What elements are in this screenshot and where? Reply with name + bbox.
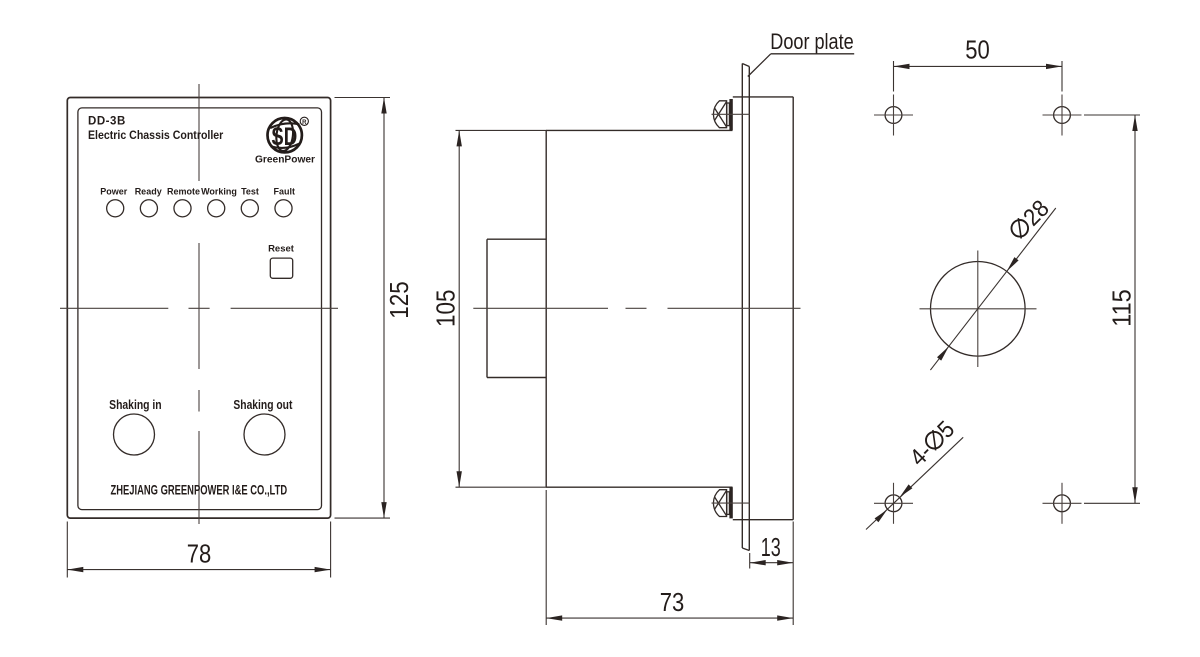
svg-text:DD-3B: DD-3B	[88, 115, 125, 127]
svg-text:125: 125	[384, 281, 414, 319]
svg-text:Reset: Reset	[268, 244, 295, 255]
svg-text:105: 105	[431, 290, 461, 328]
svg-text:R: R	[302, 120, 307, 126]
svg-text:Fault: Fault	[274, 187, 296, 197]
svg-text:Working: Working	[201, 187, 237, 197]
svg-text:13: 13	[761, 532, 781, 562]
svg-text:73: 73	[660, 587, 685, 617]
svg-text:Remote: Remote	[167, 187, 200, 197]
svg-text:Electric Chassis Controller: Electric Chassis Controller	[88, 128, 224, 142]
svg-text:Shaking out: Shaking out	[233, 398, 293, 412]
svg-text:SD: SD	[271, 123, 297, 151]
svg-text:50: 50	[965, 35, 990, 65]
svg-text:ZHEJIANG GREENPOWER I&E CO.,LT: ZHEJIANG GREENPOWER I&E CO.,LTD	[111, 483, 288, 498]
svg-text:115: 115	[1107, 289, 1137, 327]
svg-text:78: 78	[187, 539, 212, 569]
svg-text:Shaking in: Shaking in	[109, 398, 162, 412]
svg-text:GreenPower: GreenPower	[255, 154, 315, 165]
svg-text:Ready: Ready	[135, 187, 162, 197]
svg-text:Test: Test	[241, 187, 259, 197]
svg-text:Power: Power	[100, 187, 128, 197]
svg-text:Door plate: Door plate	[770, 29, 853, 54]
